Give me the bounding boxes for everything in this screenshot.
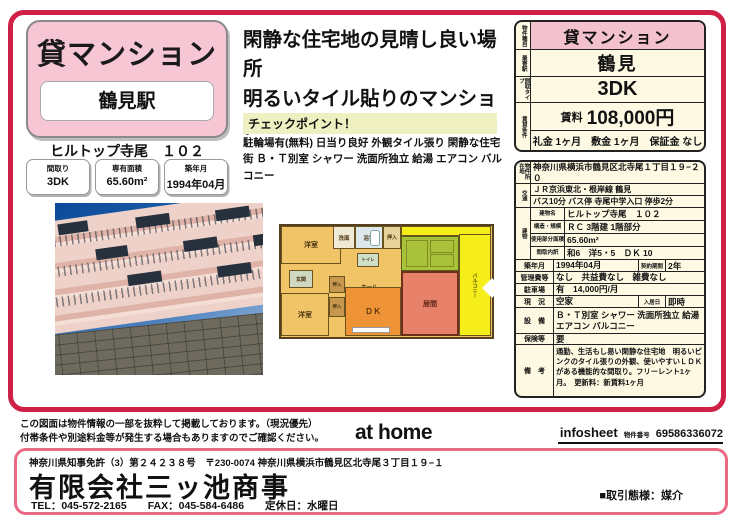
checkpoint-heading: チェックポイント！ (243, 113, 497, 134)
row-built: 築年月 1994年04月 契約期間 2年 (516, 260, 704, 272)
label-built: 築年月 (516, 260, 554, 271)
label-structure: 構造・規模 (531, 221, 565, 233)
traffic-line2: バス10分 バス停 寺尾中学入口 停歩2分 (531, 196, 704, 207)
row-traffic: 交通 ＪＲ京浜東北・根岸線 鶴見 バス10分 バス停 寺尾中学入口 停歩2分 (516, 184, 704, 208)
row-parking: 駐車場 有 14,000円/月 (516, 284, 704, 296)
rent-line: 賃料 108,000円 (531, 103, 704, 131)
summary-row-station: 最寄駅 鶴見 (516, 50, 704, 77)
balcony-label: バルコニー (472, 273, 479, 298)
value-contract: 2年 (666, 260, 704, 271)
row-building: 建物 建物名 ヒルトップ寺尾 １０２ 構造・規模 ＲＣ 3階建 1階部分 使用部… (516, 208, 704, 260)
label-parking: 駐車場 (516, 284, 554, 295)
value-remarks: 通勤、生活もし易い閑静な住宅地 明るいピンクのタイル張りの外観、使いやすいＬＤＫ… (554, 345, 704, 396)
label-area: 使用部分面積 (531, 234, 565, 246)
summary-row-category: 物件種目 貸マンション (516, 22, 704, 50)
value-fees: なし 共益費なし 雑費なし (554, 272, 704, 283)
room-living: 居間 (401, 271, 459, 336)
tatami-mat (406, 240, 428, 267)
rent-column: 賃料 108,000円 礼金 1ヶ月 敷金 1ヶ月 保証金 なし (531, 103, 704, 150)
label-equipment: 設 備 (516, 308, 554, 333)
row-fees: 管理費等 なし 共益費なし 雑費なし (516, 272, 704, 284)
row-remarks: 備 考 通勤、生活もし易い閑静な住宅地 明るいピンクのタイル張りの外観、使いやす… (516, 345, 704, 396)
spec-chips: 間取り 3DK 専有面積 65.60m² 築年月 1994年04月 (24, 159, 230, 195)
room-tatami (401, 236, 459, 271)
summary-row-layout: 間取タイプ 3DK (516, 77, 704, 103)
property-category: 貸マンション (28, 31, 226, 73)
rent-amount: 108,000円 (587, 103, 675, 130)
room-entrance: 玄関 (289, 270, 313, 288)
label-contract: 契約期間 (638, 260, 666, 271)
property-title-box: 貸マンション 鶴見駅 (26, 20, 228, 138)
summary-value-layout: 3DK (531, 77, 704, 102)
room-dk: ＤＫ (345, 287, 401, 336)
room-western-2: 洋室 (281, 293, 329, 336)
room-toilet: トイレ (357, 253, 379, 267)
room-washroom: 洗面 (333, 226, 355, 249)
chip-built-value: 1994年04月 (165, 176, 227, 192)
transaction-type: ■取引態様：媒介 (599, 487, 683, 503)
label-address: 物件所在地 (516, 162, 531, 183)
summary-value-station: 鶴見 (531, 50, 704, 76)
value-structure: ＲＣ 3階建 1階部分 (565, 221, 704, 233)
label-movein: 入居日 (638, 296, 666, 307)
room-closet-a: 押入 (329, 276, 345, 293)
value-status: 空家 (554, 296, 638, 307)
label-insurance: 保険等 (516, 334, 554, 344)
building-row-name: 建物名 ヒルトップ寺尾 １０２ (531, 208, 704, 221)
chip-layout-label: 間取り (27, 163, 89, 174)
summary-row-rent: 賃貸条件 賃料 108,000円 礼金 1ヶ月 敷金 1ヶ月 保証金 なし (516, 103, 704, 150)
row-address: 物件所在地 神奈川県横浜市鶴見区北寺尾１丁目１９−２０ (516, 162, 704, 184)
label-building: 建物 (516, 208, 531, 259)
infosheet-label: infosheet (560, 425, 618, 440)
property-number-label: 物件番号 (624, 429, 650, 439)
room-bath: 浴室 (355, 226, 383, 249)
company-contact: TEL：045-572-2165 FAX：045-584-6486 定休日：水曜… (31, 498, 339, 513)
value-movein: 即時 (666, 296, 704, 307)
floor-plan: 洋室 洗面 浴室 押入 居間 バルコニー トイレ ホール 玄関 押入 押入 洋室… (279, 224, 494, 339)
summary-label-category: 物件種目 (516, 22, 531, 49)
label-remarks: 備 考 (516, 345, 554, 396)
bathtub-icon (370, 230, 380, 246)
kitchen-counter (352, 327, 390, 333)
traffic-column: ＪＲ京浜東北・根岸線 鶴見 バス10分 バス停 寺尾中学入口 停歩2分 (531, 184, 704, 207)
row-equipment: 設 備 Ｂ・Ｔ別室 シャワー 洗面所独立 給湯 エアコン バルコニー (516, 308, 704, 334)
disclaimer-line1: この図面は物件情報の一部を抜粋して掲載しております。（現況優先） (20, 418, 365, 432)
disclaimer-line2: 付帯条件や別途料金等が発生する場合もありますのでご確認ください。 (20, 432, 365, 446)
chip-built-label: 築年月 (165, 163, 227, 174)
property-number: 69586336072 (656, 428, 723, 440)
infosheet-line: infosheet 物件番号 69586336072 (558, 425, 723, 444)
summary-value-category: 貸マンション (531, 22, 704, 49)
value-equipment: Ｂ・Ｔ別室 シャワー 洗面所独立 給湯 エアコン バルコニー (554, 308, 704, 333)
building-row-layout: 間取内訳 和6 洋5・5 ＤＫ 10 (531, 247, 704, 259)
summary-label-layout: 間取タイプ (516, 77, 531, 102)
row-status: 現 況 空家 入居日 即時 (516, 296, 704, 308)
value-address: 神奈川県横浜市鶴見区北寺尾１丁目１９−２０ (531, 162, 704, 183)
chip-area-value: 65.60m² (96, 176, 158, 188)
value-insurance: 要 (554, 334, 704, 344)
value-building-name: ヒルトップ寺尾 １０２ (565, 208, 704, 220)
rent-terms: 礼金 1ヶ月 敷金 1ヶ月 保証金 なし (531, 131, 704, 150)
chip-area: 専有面積 65.60m² (95, 159, 159, 195)
label-fees: 管理費等 (516, 272, 554, 283)
label-building-name: 建物名 (531, 208, 565, 220)
value-area: 65.60m² (565, 234, 704, 246)
label-layout-detail: 間取内訳 (531, 247, 565, 259)
value-parking: 有 14,000円/月 (554, 284, 704, 295)
room-closet-b: 押入 (329, 297, 345, 317)
value-built: 1994年04月 (554, 260, 638, 271)
building-row-area: 使用部分面積 65.60m² (531, 234, 704, 247)
tatami-mat (430, 254, 454, 267)
value-layout-detail: 和6 洋5・5 ＤＫ 10 (565, 247, 704, 259)
detail-table: 物件所在地 神奈川県横浜市鶴見区北寺尾１丁目１９−２０ 交通 ＪＲ京浜東北・根岸… (514, 160, 706, 398)
rent-label: 賃料 (561, 109, 583, 125)
room-closet-top: 押入 (383, 226, 401, 249)
room-dk-label: ＤＫ (365, 306, 381, 317)
building-column: 建物名 ヒルトップ寺尾 １０２ 構造・規模 ＲＣ 3階建 1階部分 使用部分面積… (531, 208, 704, 259)
chip-built: 築年月 1994年04月 (164, 159, 228, 195)
chip-layout-value: 3DK (27, 176, 89, 188)
catch-copy-line1: 閑静な住宅地の見晴し良い場所 (243, 26, 511, 85)
station-name: 鶴見駅 (40, 81, 214, 121)
label-traffic: 交通 (516, 184, 531, 207)
summary-label-station: 最寄駅 (516, 50, 531, 76)
exterior-photo (55, 203, 263, 375)
building-row-structure: 構造・規模 ＲＣ 3階建 1階部分 (531, 221, 704, 234)
disclaimer: この図面は物件情報の一部を抜粋して掲載しております。（現況優先） 付帯条件や別途… (20, 418, 365, 447)
chip-area-label: 専有面積 (96, 163, 158, 174)
summary-table: 物件種目 貸マンション 最寄駅 鶴見 間取タイプ 3DK 賃貸条件 賃料 108… (514, 20, 706, 152)
athome-logo: at home (355, 421, 432, 445)
room-western-1: 洋室 (281, 226, 341, 264)
building-name-heading: ヒルトップ寺尾 １０２ (26, 141, 228, 161)
summary-label-rent: 賃貸条件 (516, 103, 531, 150)
chip-layout: 間取り 3DK (26, 159, 90, 195)
company-box: 神奈川県知事免許（3）第２４２３８号 〒230-0074 神奈川県横浜市鶴見区北… (14, 448, 728, 515)
label-status: 現 況 (516, 296, 554, 307)
traffic-line1: ＪＲ京浜東北・根岸線 鶴見 (531, 184, 704, 196)
tatami-mat (430, 240, 454, 253)
feature-list: 駐輪場有(無料) 日当り良好 外観タイル張り 閑静な住宅街 Ｂ・Ｔ別室 シャワー… (243, 135, 507, 184)
row-insurance: 保険等 要 (516, 334, 704, 345)
